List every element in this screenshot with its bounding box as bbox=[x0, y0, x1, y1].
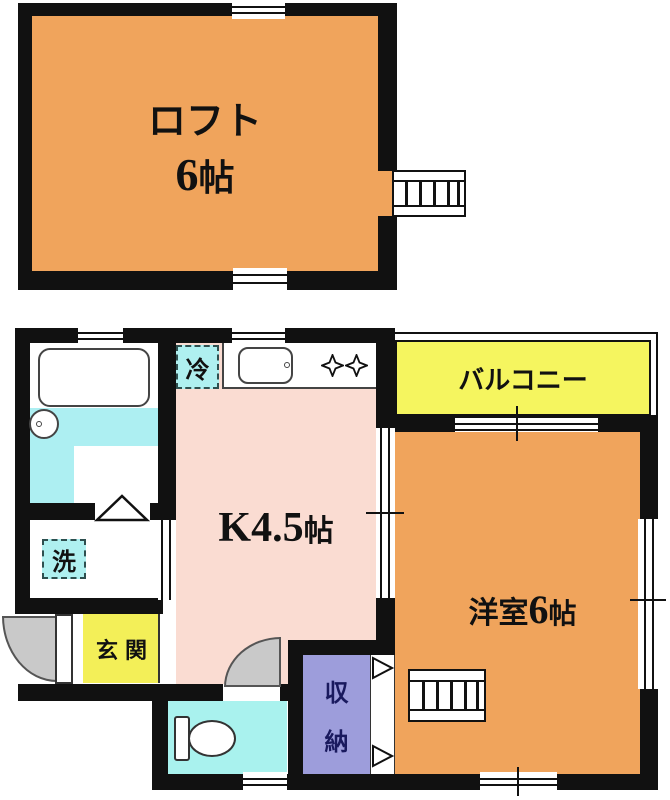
faucet-dot bbox=[36, 421, 42, 427]
closet-folding-door-icon bbox=[371, 744, 394, 768]
loft-bottom-window bbox=[233, 268, 287, 291]
washer-label: 洗 bbox=[52, 542, 76, 577]
bath-sink-icon bbox=[29, 409, 59, 439]
balcony-label: バルコニー bbox=[458, 360, 587, 397]
window-center-tick bbox=[630, 599, 666, 601]
stove-burner-icon bbox=[345, 354, 368, 377]
toilet-window bbox=[243, 772, 287, 791]
stove-burner-icon bbox=[321, 354, 344, 377]
bathroom-folding-door-icon bbox=[94, 493, 150, 522]
wall-segment bbox=[152, 774, 658, 790]
closet-folding-door-icon bbox=[371, 656, 394, 680]
wall-segment bbox=[376, 598, 395, 640]
wall-segment bbox=[376, 328, 395, 428]
entrance-door-leaf bbox=[55, 614, 73, 684]
door-center-tick bbox=[516, 406, 518, 441]
faucet-dot bbox=[284, 362, 290, 368]
western-room-right-window bbox=[638, 519, 661, 689]
wall-segment bbox=[27, 598, 163, 614]
wall-segment bbox=[640, 415, 658, 521]
bathtub-icon bbox=[38, 348, 150, 407]
balcony: バルコニー bbox=[395, 340, 651, 416]
laundry-sliding-door bbox=[158, 520, 176, 600]
wall-segment bbox=[640, 687, 658, 774]
entrance-step bbox=[158, 614, 176, 683]
loft-top-window bbox=[232, 1, 285, 19]
kitchen-label: K4.5帖 bbox=[176, 502, 376, 555]
washer-tag: 洗 bbox=[42, 539, 86, 579]
entrance-area: 玄関 bbox=[83, 614, 160, 683]
entrance-label: 玄関 bbox=[96, 633, 154, 665]
wall-segment bbox=[15, 328, 30, 614]
window-center-tick bbox=[517, 767, 519, 796]
room-ladder-icon bbox=[408, 669, 486, 722]
refrigerator-tag: 冷 bbox=[176, 345, 219, 389]
wall-segment bbox=[288, 640, 303, 774]
storage-label-1: 収 bbox=[325, 673, 349, 708]
entrance-door-swing bbox=[2, 616, 57, 682]
toilet-bowl-icon bbox=[188, 720, 236, 757]
balcony-sliding-door bbox=[455, 416, 598, 431]
loft-ladder-icon bbox=[392, 170, 466, 217]
wall-segment bbox=[288, 640, 395, 655]
refrigerator-label: 冷 bbox=[186, 350, 210, 385]
wall-segment bbox=[15, 328, 392, 343]
floor-plan: ロフト 6帖 バルコニー bbox=[0, 0, 670, 800]
wall-segment bbox=[392, 415, 455, 432]
wall-segment bbox=[598, 415, 643, 432]
western-room-label: 洋室6帖 bbox=[415, 585, 630, 635]
bathroom-window bbox=[78, 326, 123, 345]
storage-label-2: 納 bbox=[325, 722, 349, 757]
storage-closet: 収 納 bbox=[303, 655, 370, 774]
loft-room-label: ロフト 6帖 bbox=[32, 98, 378, 203]
wall-segment bbox=[158, 343, 176, 520]
